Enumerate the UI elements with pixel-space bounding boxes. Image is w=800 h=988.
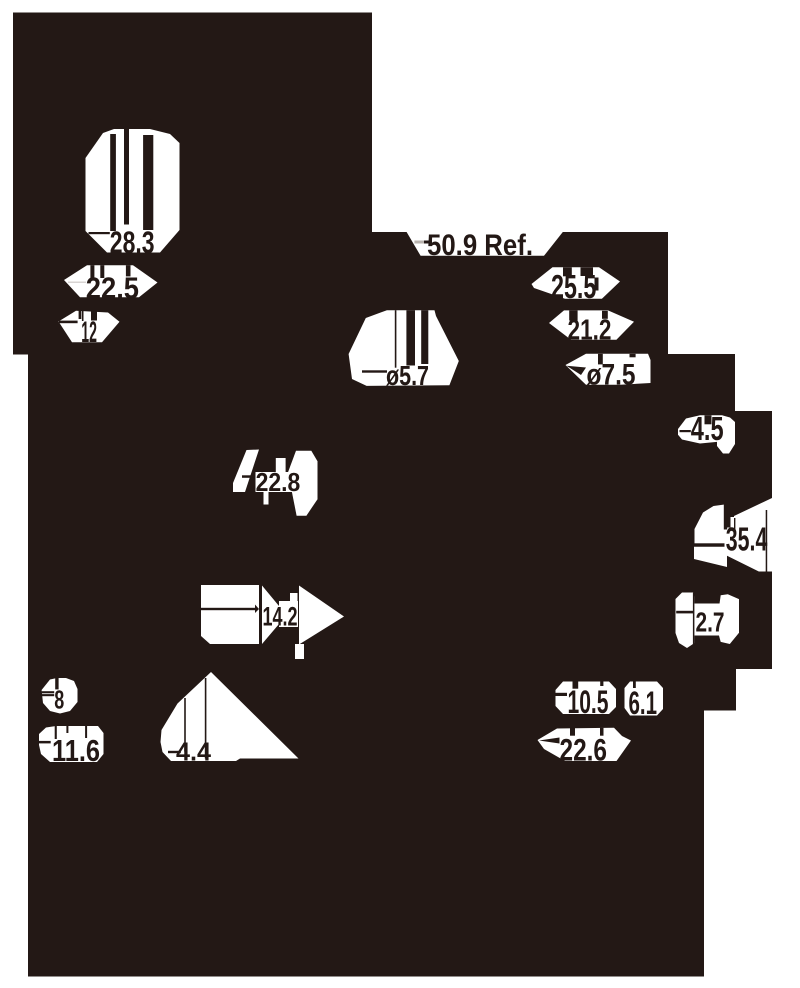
svg-text:35.4: 35.4	[726, 522, 768, 559]
svg-text:12: 12	[81, 316, 97, 349]
svg-text:2.7: 2.7	[696, 607, 725, 638]
svg-text:4.5: 4.5	[691, 410, 724, 447]
svg-text:10.5: 10.5	[568, 684, 609, 720]
svg-text:22.5: 22.5	[86, 271, 139, 306]
svg-text:ø7.5: ø7.5	[587, 359, 636, 392]
svg-text:14.2: 14.2	[263, 602, 298, 632]
svg-text:50.9 Ref.: 50.9 Ref.	[427, 229, 533, 262]
svg-text:22.8: 22.8	[256, 469, 301, 497]
svg-text:11.6: 11.6	[52, 733, 100, 768]
svg-text:25.5: 25.5	[551, 268, 596, 305]
svg-text:4.4: 4.4	[176, 737, 212, 767]
svg-text:ø5.7: ø5.7	[386, 360, 429, 391]
svg-text:28.3: 28.3	[110, 224, 155, 260]
svg-text:22.6: 22.6	[560, 732, 608, 768]
svg-text:6.1: 6.1	[629, 685, 658, 721]
svg-text:21.2: 21.2	[568, 315, 612, 347]
svg-text:8: 8	[54, 685, 64, 715]
